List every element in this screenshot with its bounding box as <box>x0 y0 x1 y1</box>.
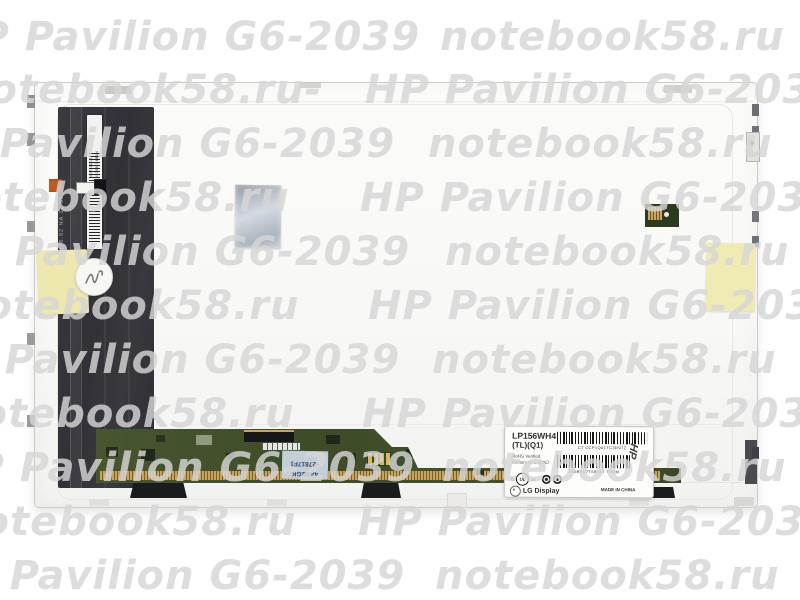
pcb-label-line2: +27817F1 <box>282 458 328 469</box>
barcode <box>557 455 631 468</box>
info-label: LP156WH4 (TL)(Q1) RoHS Verified Factory … <box>504 426 654 499</box>
frame-notch <box>447 493 467 508</box>
mount-tab <box>27 221 35 232</box>
tape-seam <box>128 147 130 477</box>
ic-chip <box>346 453 356 460</box>
mount-tab <box>664 85 692 93</box>
certification-row: c UL us <box>511 473 562 486</box>
bracket-hole <box>750 141 754 145</box>
pull-tab-film <box>235 185 282 248</box>
frame-notch <box>89 499 109 506</box>
ic-chip <box>196 435 212 445</box>
ul-suffix: us <box>531 477 536 482</box>
made-in-text: MADE IN CHINA <box>601 487 636 492</box>
watermark-text: HP Pavilion G6-2039 <box>0 14 420 60</box>
ic-chip <box>226 453 234 459</box>
watermark-text: HP Pavilion G6-2039 <box>0 553 405 599</box>
frame-seam-line <box>37 101 753 102</box>
model-number: LP156WH4 <box>512 431 556 441</box>
mount-tab <box>752 447 759 459</box>
cert-mark-icon <box>542 475 551 484</box>
watermark-text: notebook58.ru <box>440 14 784 60</box>
factory-id-text: Factory ID LGDNJ <box>512 460 549 465</box>
ic-chip <box>156 435 165 442</box>
frame-notch <box>629 499 649 506</box>
rubber-foot <box>361 481 401 498</box>
mount-bracket <box>746 132 760 162</box>
barcode-text: 156BBC7T69LA7 TM2M <box>557 469 631 474</box>
mount-tab <box>27 95 35 108</box>
pcb-label-line1: 4AN2GK <box>282 468 328 479</box>
mount-tab <box>105 86 131 94</box>
ic-chip <box>476 470 484 475</box>
mount-tab <box>299 83 321 88</box>
product-photo-lcd-panel: 55508-09476.82 NA 11 38 D NDR 2D16 55368… <box>0 0 800 600</box>
pcb-end-block <box>645 204 679 227</box>
yellow-sticker-right <box>705 243 755 312</box>
gold-pads <box>648 207 662 220</box>
round-inspection-sticker <box>75 258 113 296</box>
brand-row: LG Display <box>510 486 560 497</box>
backlight-connector <box>76 182 95 194</box>
frame-corner <box>734 497 754 506</box>
model-revision: (TL)(Q1) <box>512 441 543 450</box>
frame-notch <box>267 499 287 506</box>
rohs-text: RoHS Verified <box>512 454 540 459</box>
capacitor-row <box>367 452 391 466</box>
cert-mark-icon <box>553 475 562 484</box>
ic-chip <box>141 449 155 461</box>
watermark-text: notebook58.ru <box>435 553 779 599</box>
mount-tab <box>27 415 35 427</box>
rubber-foot <box>651 487 675 498</box>
lg-logo-icon <box>510 486 521 497</box>
component-array <box>262 443 300 450</box>
watermark-row: HP Pavilion G6-2039notebook58.ru <box>0 14 800 66</box>
screw-hole <box>664 212 669 217</box>
lvds-connector <box>244 430 294 442</box>
copper-tape <box>49 179 63 192</box>
mount-tab <box>752 104 759 116</box>
mount-tab <box>27 333 35 345</box>
barcode <box>89 211 100 243</box>
mount-tab <box>752 211 759 222</box>
brand-name: LG Display <box>523 488 560 495</box>
ic-chip <box>106 447 118 457</box>
mount-tab <box>27 133 35 146</box>
lcd-panel-back: 55508-09476.82 NA 11 38 D NDR 2D16 55368… <box>34 82 758 508</box>
pcb-label-sticker: 4AN2GK +27817F1 <box>282 451 328 480</box>
ul-prefix: c <box>511 476 514 482</box>
barcode <box>557 432 647 444</box>
frame-seam-line <box>155 424 730 425</box>
ul-mark-icon: UL <box>516 473 529 486</box>
handwritten-squiggle <box>76 259 112 295</box>
connector-clip <box>94 179 107 195</box>
ic-chip <box>326 435 340 444</box>
watermark-row: HP Pavilion G6-2039notebook58.ru <box>0 553 800 600</box>
